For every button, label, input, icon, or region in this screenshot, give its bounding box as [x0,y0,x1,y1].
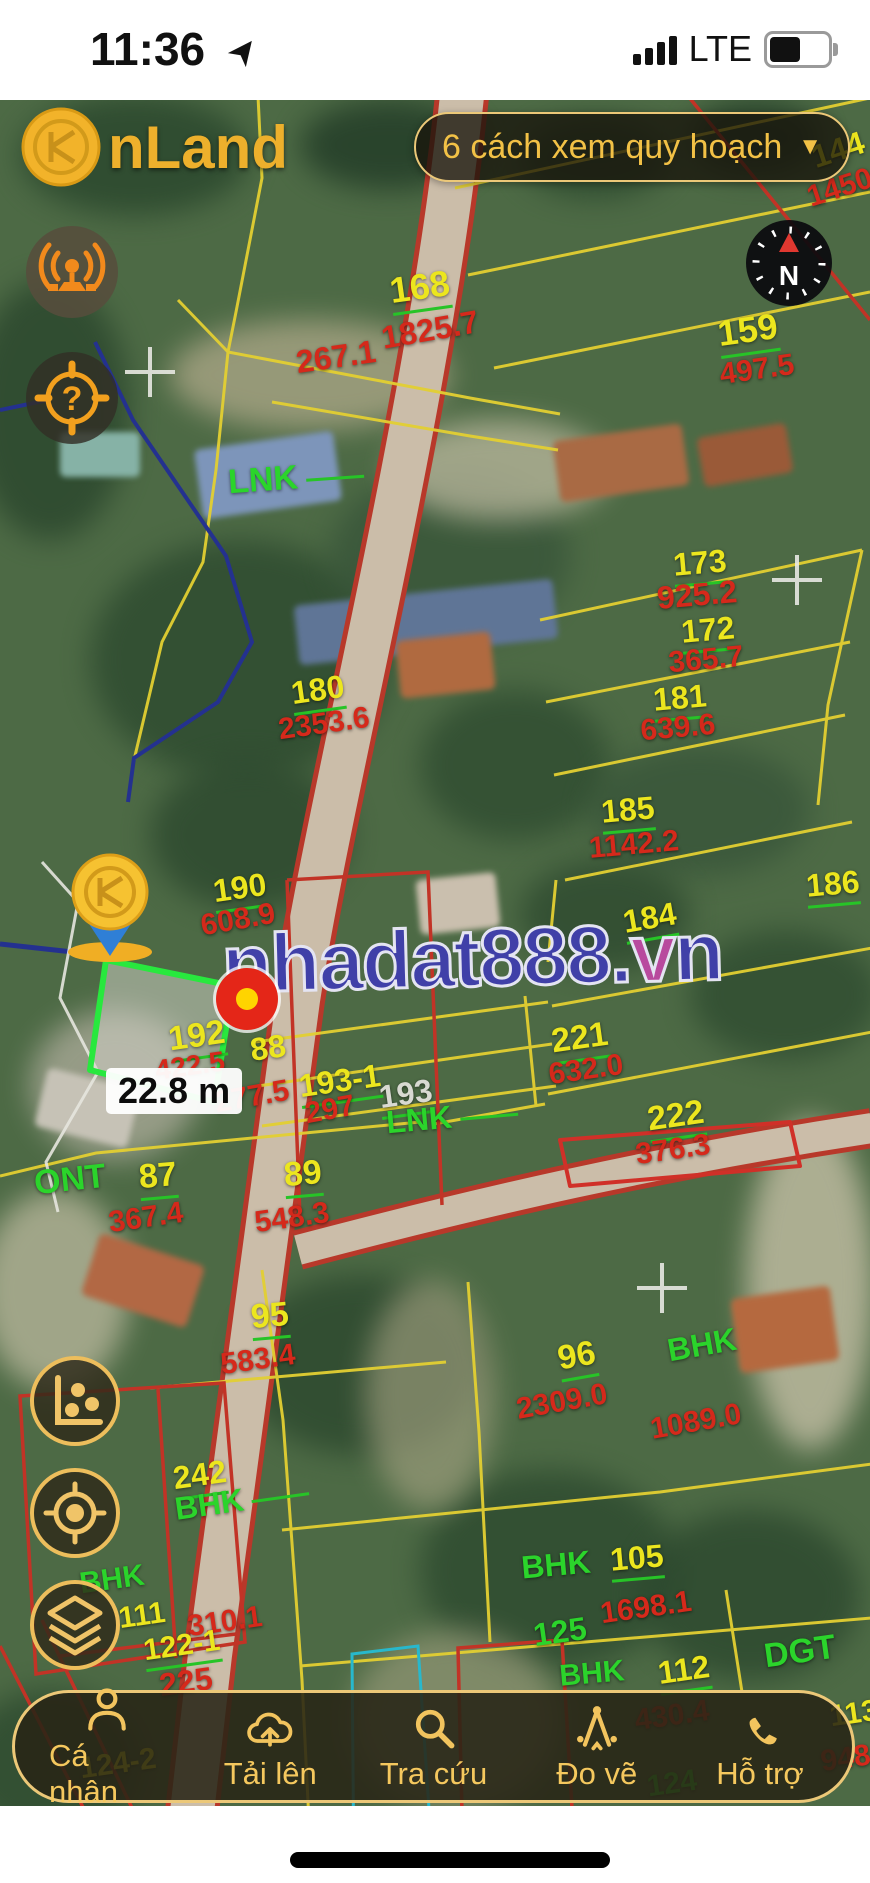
map-label-bhk: BHK [520,1544,592,1587]
nav-item-label: Hỗ trợ [716,1756,804,1792]
selected-point-marker[interactable] [216,968,278,1030]
map-label-105: 105 [609,1537,666,1582]
help-locate-button[interactable]: ? [26,352,118,444]
nav-item-phone[interactable]: Hỗ trợ [702,1702,818,1792]
map-label-365-7: 365.7 [667,640,745,680]
app-screen: 1681825.7159497.51441450267.1LNK173925.2… [0,0,870,1883]
cloud-upload-icon [244,1702,296,1754]
battery-icon [764,31,832,68]
measurement-label: 22.8 m [106,1068,242,1114]
svg-text:?: ? [62,380,83,418]
header-bar: nLand 6 cách xem quy hoạch ▼ [20,104,850,190]
chevron-down-icon: ▼ [798,133,822,161]
person-icon [81,1684,133,1736]
map-label-bhk: BHK [558,1654,626,1694]
nav-item-search[interactable]: Tra cứu [376,1702,492,1792]
map-label-88: 88 [248,1027,288,1069]
nav-item-measure[interactable]: Đo vẽ [539,1702,655,1792]
map-label-186: 186 [805,863,862,908]
compass-button[interactable]: N [746,220,832,306]
broadcast-button[interactable] [26,226,118,318]
locate-button[interactable] [30,1468,120,1558]
network-type: LTE [689,28,752,70]
app-name: nLand [108,113,288,182]
nav-item-label: Đo vẽ [556,1756,637,1792]
nav-item-label: Cá nhân [49,1738,165,1810]
measure-icon [571,1702,623,1754]
bottom-navigation: Cá nhânTải lênTra cứuĐo vẽHỗ trợ [12,1690,855,1803]
phone-icon [734,1702,786,1754]
question-target-icon: ? [26,352,118,444]
map-label-125: 125 [531,1610,589,1654]
map-label-639-6: 639.6 [639,708,717,748]
stats-button[interactable] [30,1356,120,1446]
map-label-112: 112 [656,1648,713,1696]
broadcast-icon [26,226,118,318]
land-code-underline [460,1113,518,1121]
nav-item-label: Tải lên [224,1756,317,1792]
nav-item-person[interactable]: Cá nhân [49,1684,165,1810]
land-code-underline [252,1492,310,1503]
app-logo: nLand [20,102,288,192]
crosshair-target-icon [34,1472,116,1554]
compass-north-label: N [746,260,832,292]
nav-item-label: Tra cứu [380,1756,487,1792]
search-icon [408,1702,460,1754]
land-code-underline [306,475,364,482]
clock: 11:36 [90,22,205,76]
coin-logo-icon [20,102,102,192]
layers-button[interactable] [30,1580,120,1670]
planning-view-label: 6 cách xem quy hoạch [442,128,782,167]
signal-strength-icon [633,33,677,65]
map-label-95: 95 [249,1295,290,1341]
map-label-89: 89 [282,1153,323,1199]
planning-view-dropdown[interactable]: 6 cách xem quy hoạch ▼ [414,112,850,182]
map-label-ont: ONT [32,1157,107,1203]
layers-icon [34,1584,116,1666]
map-label-111: 111 [116,1596,167,1636]
scatter-chart-icon [34,1360,116,1442]
map-pin-marker[interactable] [52,846,168,968]
home-indicator[interactable] [290,1852,610,1868]
nav-item-cloud-upload[interactable]: Tải lên [212,1702,328,1792]
map-label-87: 87 [137,1155,178,1201]
location-services-icon: ➤ [217,26,269,76]
status-bar: 11:36 ➤ LTE [0,0,870,100]
map-label-96: 96 [555,1334,600,1383]
bottom-strip [0,1806,870,1883]
watermark: nhadat888.vn [221,905,723,1012]
